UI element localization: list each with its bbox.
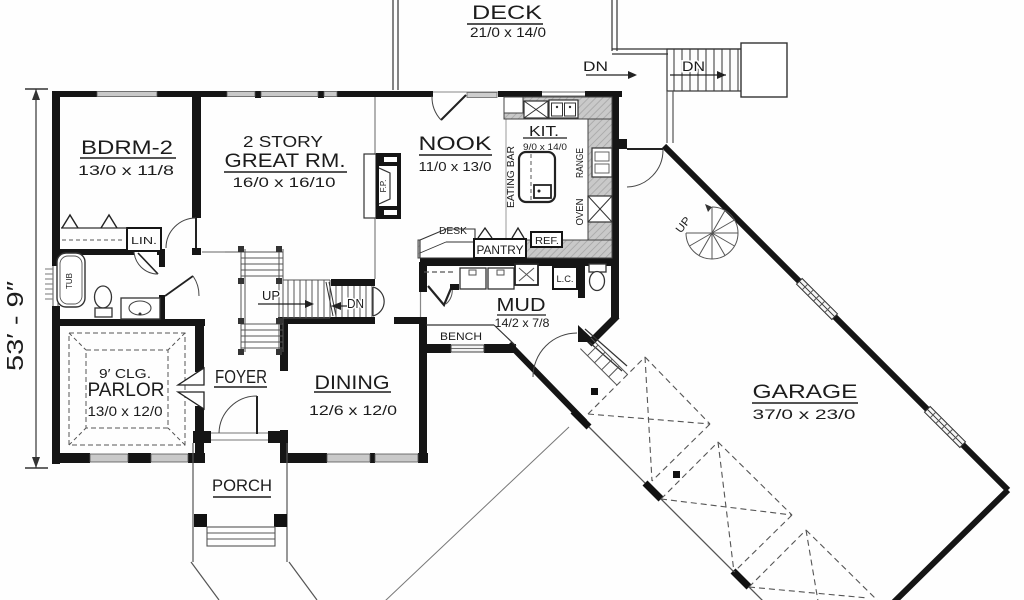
svg-text:16/0 x 16/10: 16/0 x 16/10 [233,174,336,190]
svg-text:DINING: DINING [315,373,390,394]
svg-text:BENCH: BENCH [440,331,482,343]
svg-text:13/0 x 11/8: 13/0 x 11/8 [78,162,174,178]
svg-text:RANGE: RANGE [575,148,586,178]
svg-text:DN: DN [583,58,608,74]
svg-text:21/0 x 14/0: 21/0 x 14/0 [470,24,546,40]
svg-text:EATING BAR: EATING BAR [506,146,517,208]
svg-text:L.C.: L.C. [557,274,574,284]
svg-text:PANTRY: PANTRY [477,243,524,257]
svg-text:TUB: TUB [65,273,74,289]
svg-text:DECK: DECK [472,3,542,24]
svg-text:PARLOR: PARLOR [88,380,165,401]
svg-text:NOOK: NOOK [419,134,492,155]
svg-text:13/0 x 12/0: 13/0 x 12/0 [88,403,163,419]
svg-text:GARAGE: GARAGE [753,382,858,403]
svg-text:9′ CLG.: 9′ CLG. [99,366,151,381]
svg-text:LIN.: LIN. [131,236,157,247]
svg-text:11/0 x 13/0: 11/0 x 13/0 [419,159,492,174]
svg-text:PORCH: PORCH [212,476,272,495]
svg-text:37/0 x 23/0: 37/0 x 23/0 [753,406,856,422]
svg-text:FOYER: FOYER [215,367,267,387]
svg-text:BDRM-2: BDRM-2 [81,138,173,159]
svg-text:DESK: DESK [439,226,467,237]
svg-text:12/6 x 12/0: 12/6 x 12/0 [309,402,397,418]
svg-text:OVEN: OVEN [575,199,586,226]
svg-text:14/2 x 7/8: 14/2 x 7/8 [495,316,550,330]
svg-text:GREAT RM.: GREAT RM. [225,151,346,172]
svg-text:REF.: REF. [535,236,559,247]
svg-text:2 STORY: 2 STORY [243,134,323,151]
svg-text:DN: DN [682,58,705,74]
svg-text:F.P.: F.P. [379,180,388,193]
svg-text:DN: DN [347,296,364,311]
svg-text:UP: UP [262,288,280,303]
svg-text:53′ - 9″: 53′ - 9″ [2,281,28,371]
svg-text:MUD: MUD [497,295,546,315]
